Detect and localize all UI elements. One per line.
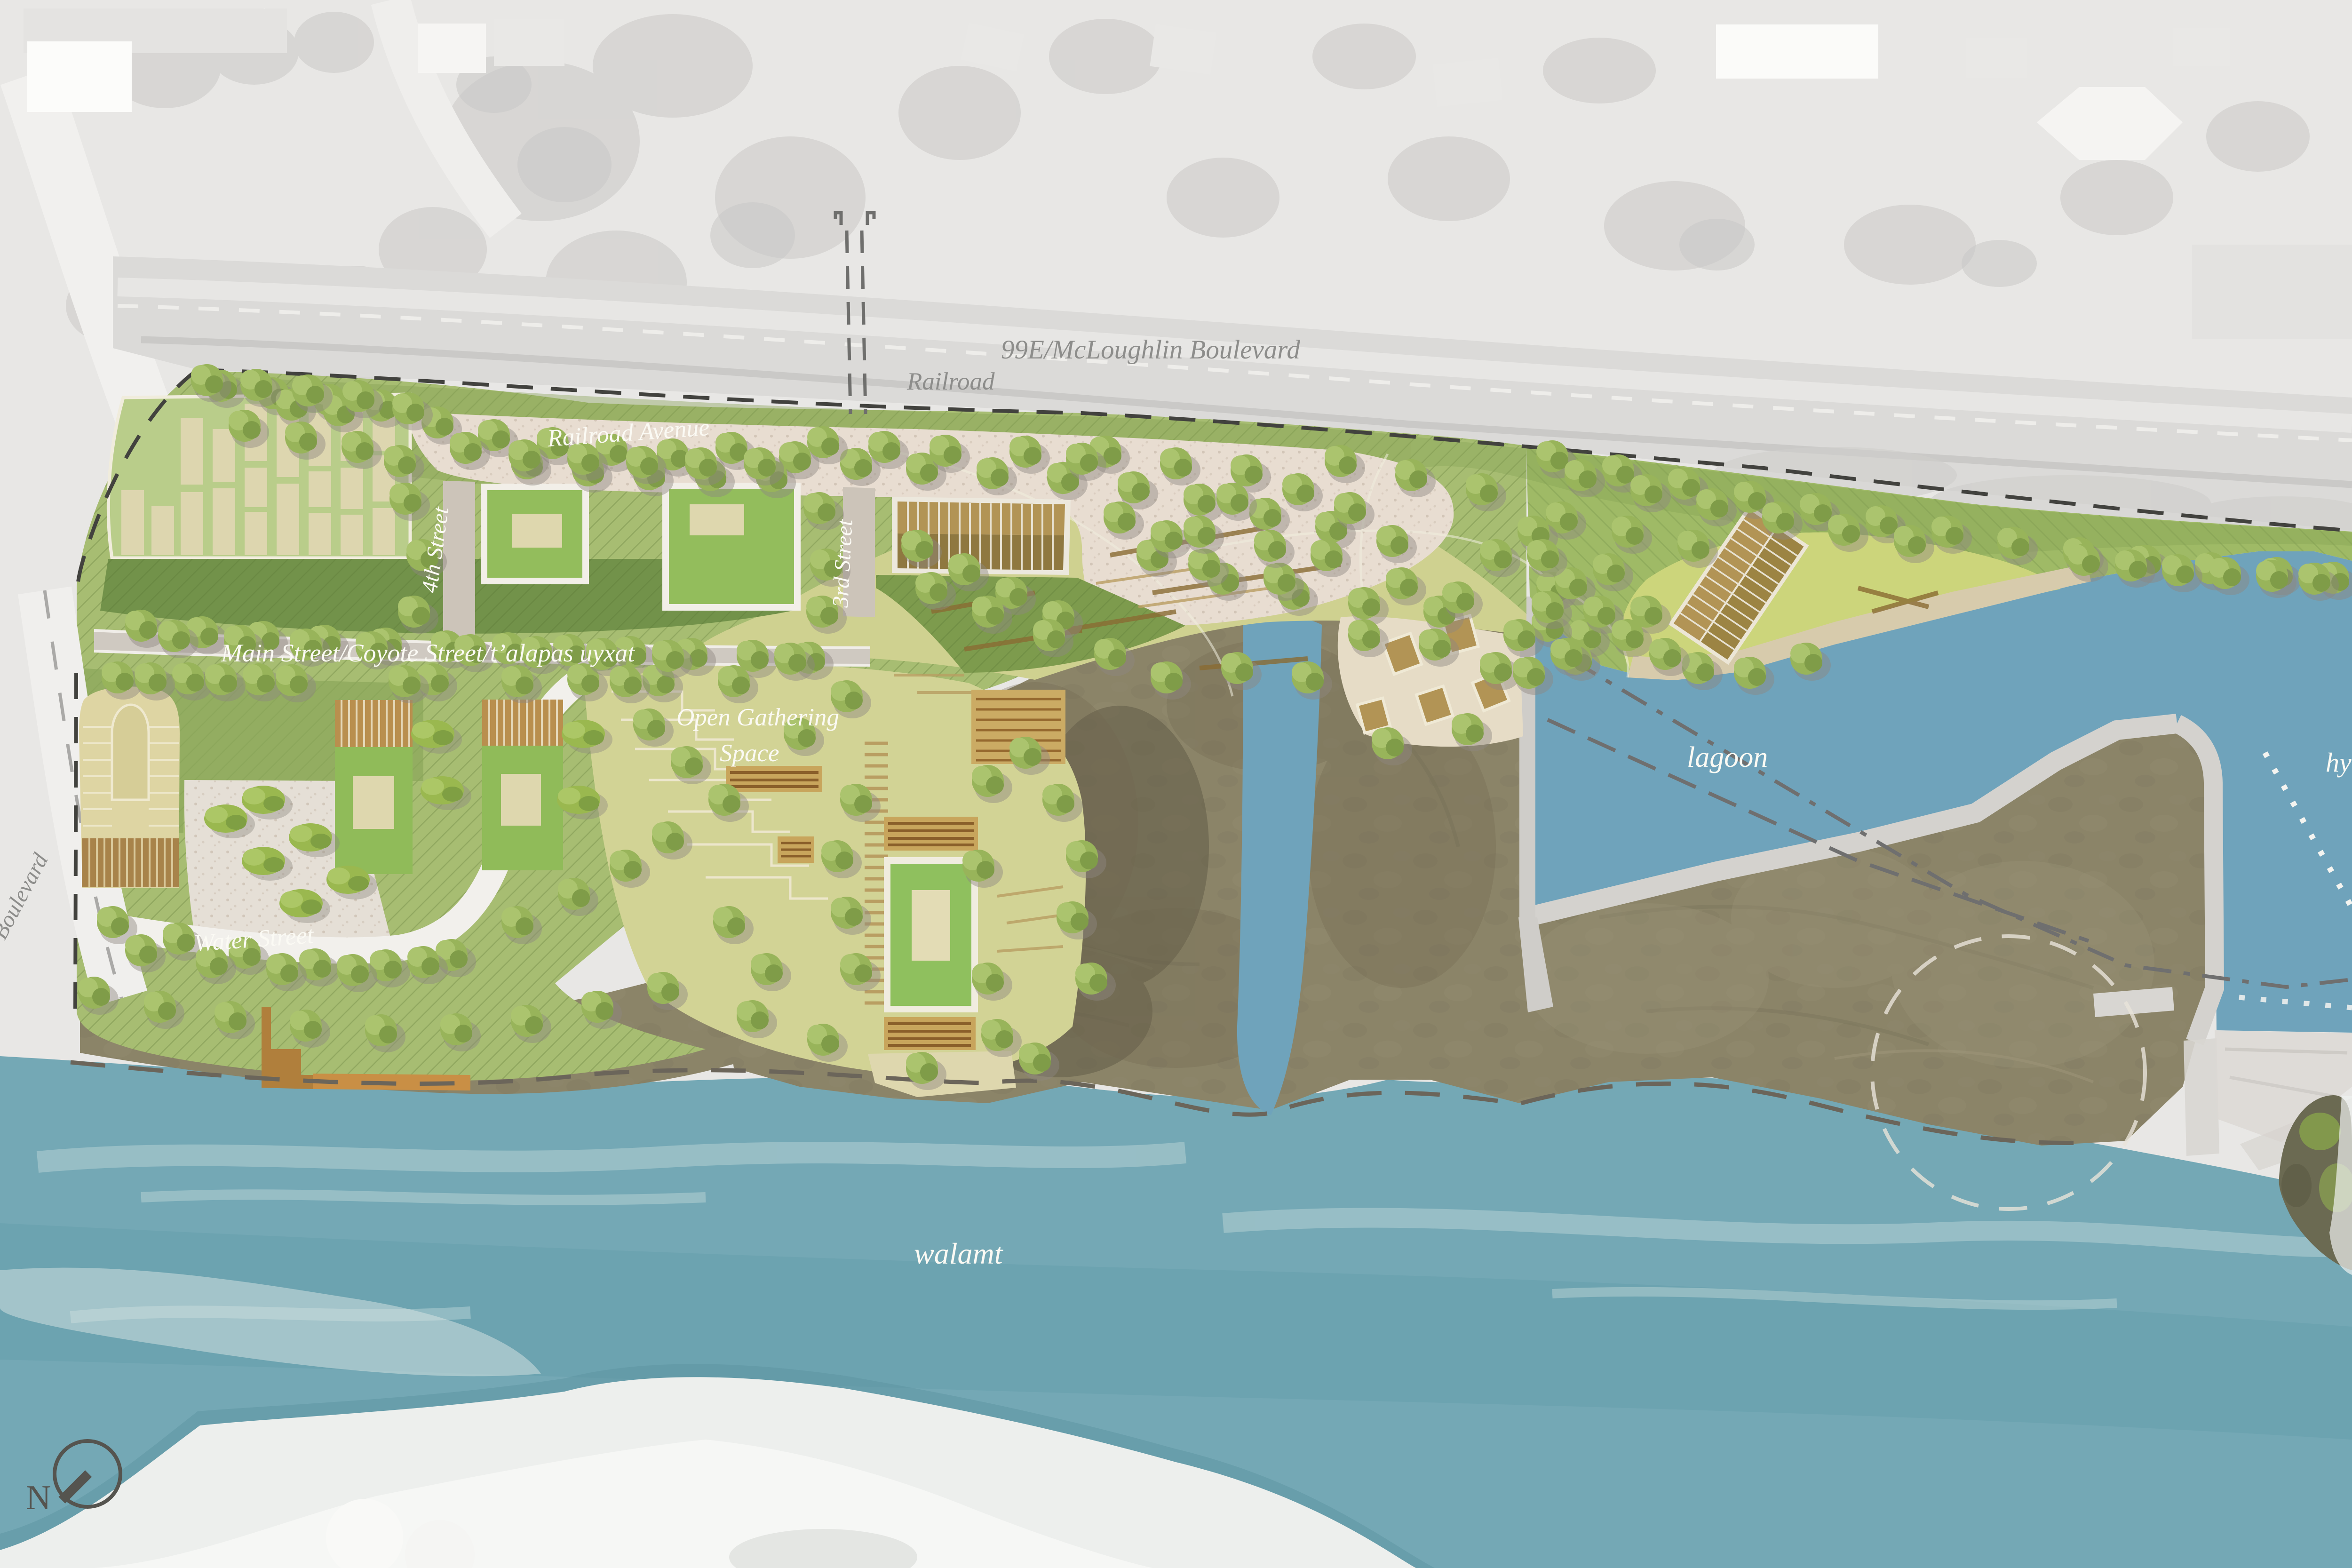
svg-text:N: N [26,1479,51,1517]
svg-text:walamt: walamt [914,1237,1004,1270]
svg-text:Open Gathering: Open Gathering [676,704,839,731]
svg-text:3rd Street: 3rd Street [828,518,858,608]
svg-text:Railroad: Railroad [906,368,995,395]
svg-text:hyd: hyd [2326,747,2352,778]
svg-text:Space: Space [720,740,779,767]
svg-text:Main Street/Coyote Street/t’al: Main Street/Coyote Street/t’alapas uyxat [221,639,636,667]
svg-text:99E/McLoughlin Boulevard: 99E/McLoughlin Boulevard [1001,335,1300,365]
svg-text:lagoon: lagoon [1687,741,1768,773]
